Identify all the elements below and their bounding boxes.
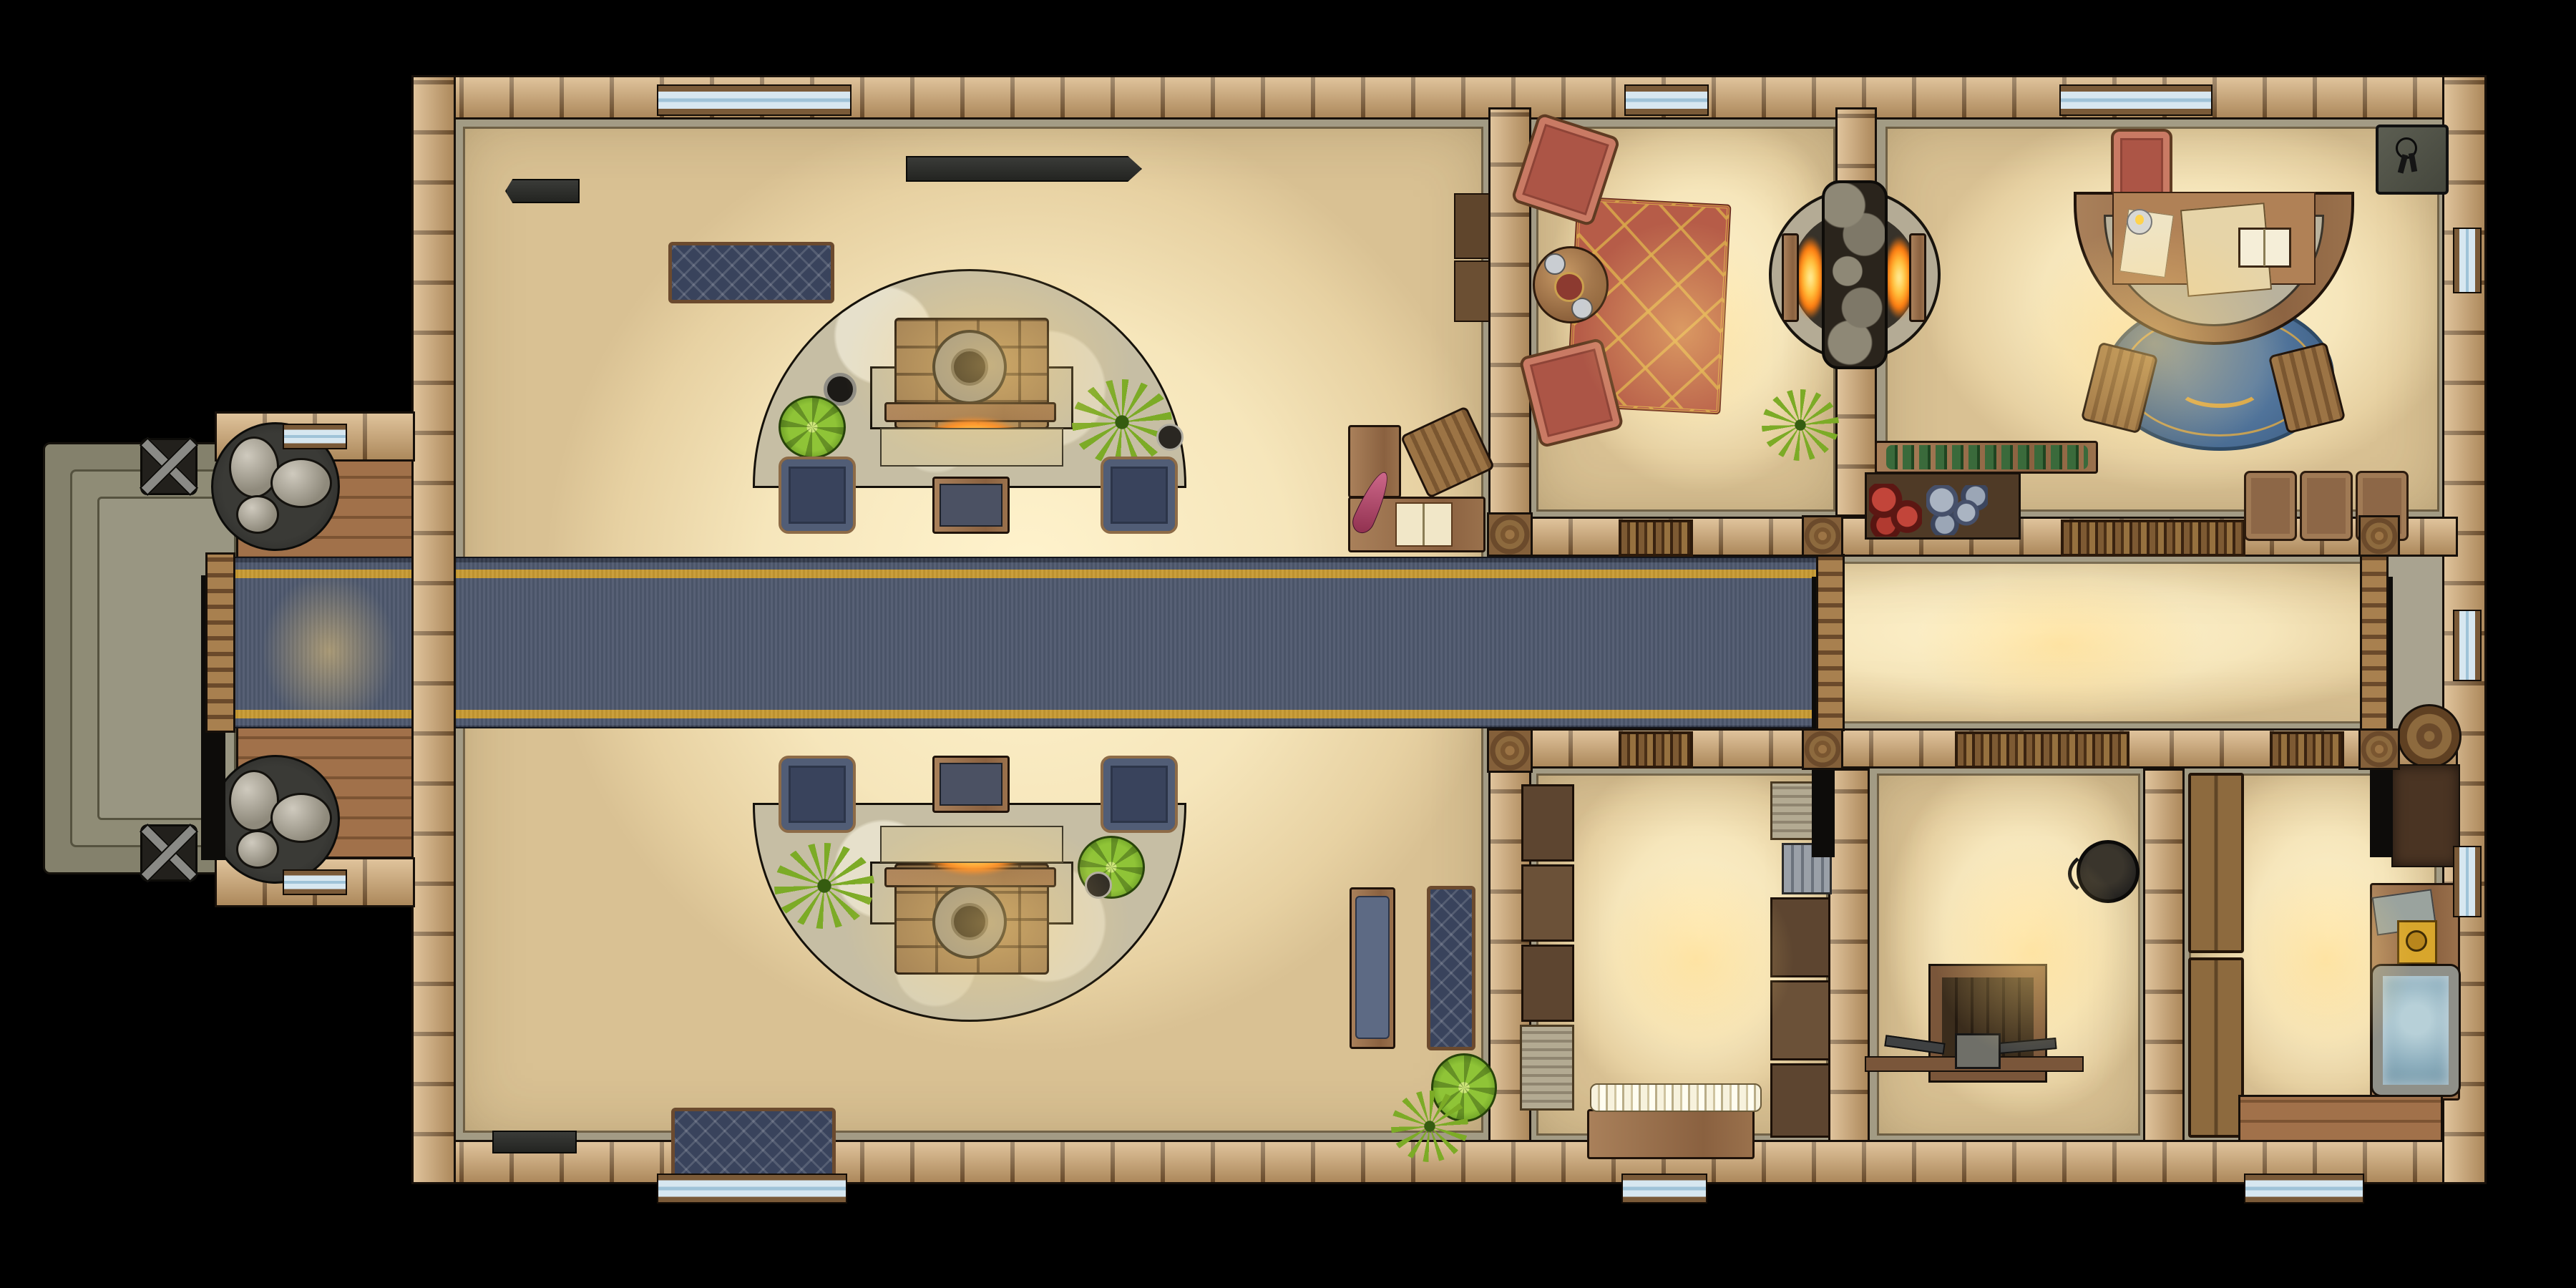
south-hearth-slab (880, 826, 1063, 863)
records-scroll-row (1590, 1083, 1762, 1112)
south-fireplace-flue (951, 903, 988, 940)
corridor-door-east (2360, 554, 2389, 731)
window-porch-north (283, 424, 347, 449)
hall-south-settee (671, 1108, 836, 1179)
window-porch-south (283, 869, 347, 895)
study-bottle-row (1886, 445, 2088, 469)
bath-wardrobe-1 (2188, 773, 2244, 953)
sitting-food-platter (1554, 272, 1584, 302)
shared-hearth-mantel-east (1909, 233, 1926, 322)
wall-records-storage (1828, 769, 1870, 1142)
south-armchair-left (779, 756, 856, 833)
bookshelf-storage-north (1955, 731, 2129, 769)
window-study-north (2059, 84, 2212, 116)
sitting-plate-1 (1544, 253, 1566, 275)
wall-shelf-north (906, 156, 1142, 182)
storage-whetstone (1955, 1033, 2001, 1069)
bath-platform (2238, 1095, 2443, 1142)
north-plant-pot (1156, 424, 1184, 451)
hall-side-cabinet-upper (1454, 193, 1490, 259)
wall-shelf-southwest (492, 1131, 577, 1153)
hall-daybed-mattress (1355, 896, 1390, 1039)
records-paper-shelf (1770, 781, 1830, 840)
hall-tufted-bench (1427, 886, 1475, 1050)
study-candle-flame (2135, 215, 2144, 225)
sitting-plant-spiky (1762, 389, 1839, 461)
rock-chimney-column (1822, 180, 1888, 369)
records-cabinet-east-3 (1770, 1063, 1830, 1138)
window-bath-south (2244, 1174, 2364, 1204)
records-cabinet-east-1 (1770, 897, 1830, 977)
study-book-spine (2263, 229, 2265, 266)
corridor-post-3 (1802, 515, 1843, 557)
south-plant-pot (1085, 872, 1112, 899)
corridor-post-2 (1487, 728, 1533, 773)
south-plant-spiky (774, 843, 874, 929)
records-paper-crate (1520, 1025, 1574, 1111)
corridor-post-6 (2358, 728, 2400, 770)
bookshelf-study-south (2061, 519, 2245, 557)
study-bench-cushion-2 (2300, 471, 2353, 541)
north-hearth-slab (880, 428, 1063, 467)
main-entrance-door (205, 552, 235, 733)
bookshelf-records-north (1619, 731, 1693, 769)
north-side-table-top (940, 484, 1002, 527)
window-sitting-north (1624, 84, 1709, 116)
study-rug-gold-motif (2177, 368, 2263, 408)
storage-room-floor (1850, 747, 2167, 1162)
corridor-post-4 (1802, 728, 1843, 770)
window-east-study (2453, 228, 2482, 293)
hall-north-settee (668, 242, 834, 303)
wall-shelf-northwest (505, 179, 580, 203)
bookshelf-sitting-south (1619, 519, 1693, 557)
shared-hearth-mantel-west (1782, 233, 1799, 322)
south-armchair-right (1101, 756, 1178, 833)
battle-map-canvas (0, 0, 2576, 1288)
hall-plant-spiky (1391, 1091, 1468, 1162)
records-book-stack (1782, 843, 1832, 894)
records-cabinet-west-3 (1521, 945, 1574, 1022)
bath-mat (2391, 764, 2460, 867)
north-plant-leafy (779, 396, 846, 459)
window-hall-south (657, 1174, 847, 1204)
porch-boulder-n3 (236, 495, 279, 534)
north-fireplace-flue (951, 348, 988, 386)
porch-boulder-s2 (270, 793, 332, 843)
records-cabinet-west-1 (1521, 784, 1574, 862)
hall-side-cabinet-lower (1454, 260, 1490, 322)
vestibule-barrel-lid (2397, 704, 2462, 769)
porch-boulder-n2 (270, 458, 332, 508)
storage-cauldron-handle (2068, 849, 2142, 899)
study-plate-stack (1926, 485, 1988, 535)
corridor-door-west (1816, 554, 1845, 731)
north-plant-spiky (1072, 379, 1172, 465)
porch-boulder-s3 (236, 830, 279, 869)
bath-tub (2373, 966, 2459, 1095)
records-scroll-table (1587, 1109, 1755, 1159)
window-east-bath (2453, 846, 2482, 917)
records-cabinet-west-2 (1521, 864, 1574, 942)
study-wine-rosettes (1869, 484, 1922, 537)
window-east-corridor (2453, 610, 2482, 681)
bookshelf-bath-north (2270, 731, 2344, 769)
corridor-carpet (233, 557, 1823, 728)
study-bench-cushion-1 (2244, 471, 2297, 541)
hall-ledger-spine (1423, 504, 1425, 545)
bath-wardrobe-2 (2188, 957, 2244, 1138)
records-cabinet-east-2 (1770, 980, 1830, 1060)
north-armchair-left (779, 457, 856, 534)
window-records-south (1621, 1174, 1707, 1204)
corridor-post-1 (1487, 512, 1533, 557)
wall-storage-bath (2143, 769, 2185, 1142)
corridor-post-5 (2358, 515, 2400, 557)
bath-faucet-knob (2406, 930, 2427, 952)
south-side-table-top (940, 763, 1002, 806)
window-hall-north (657, 84, 852, 116)
wall-west (411, 75, 456, 1184)
north-armchair-right (1101, 457, 1178, 534)
